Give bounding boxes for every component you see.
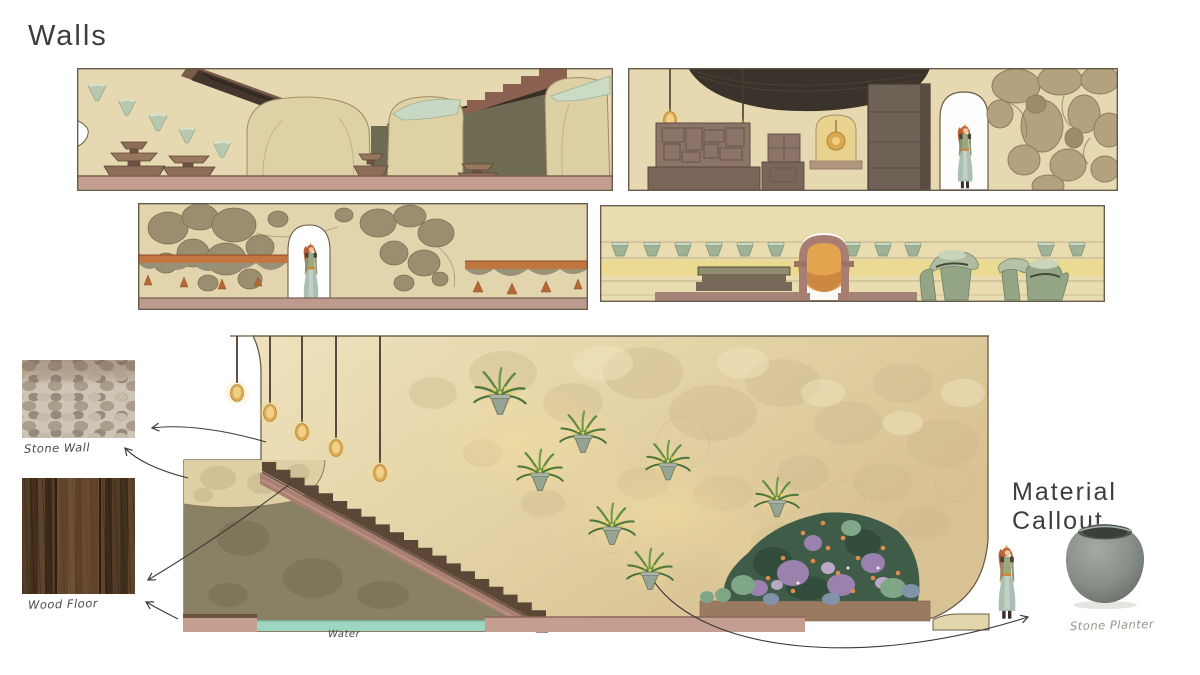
- main-elevation: [183, 333, 990, 633]
- arrow-to-wood-floor-2: [146, 602, 178, 619]
- water-label: Water: [328, 629, 360, 640]
- stone-planter-image: [1057, 519, 1153, 613]
- wood-floor-swatch: [22, 478, 135, 594]
- floor-strip: [139, 298, 588, 309]
- floor-strip: [655, 292, 917, 301]
- stone-wall-swatch: [22, 360, 135, 438]
- boulder: [545, 76, 610, 186]
- stone-wall-label: Stone Wall: [24, 440, 90, 456]
- floor-strip: [78, 176, 613, 189]
- right-ledge: [933, 614, 989, 630]
- side-box: [762, 134, 804, 190]
- doorway-arch: [288, 225, 330, 307]
- page-title: Walls: [28, 20, 108, 53]
- bench: [696, 267, 792, 291]
- wood-floor-label: Wood Floor: [28, 596, 98, 612]
- scale-figure: [991, 543, 1023, 623]
- boulder: [387, 97, 463, 186]
- arrow-to-stone-wall-2: [125, 448, 188, 478]
- boulder: [247, 97, 371, 186]
- character-figure: [999, 545, 1016, 618]
- stone-planter-label: Stone Planter: [1070, 617, 1154, 633]
- doorway-arch: [940, 92, 988, 190]
- cabinet: [648, 123, 760, 190]
- floor-strip: [485, 617, 805, 632]
- wall-elevation-4: [600, 205, 1105, 302]
- arch-niche: [794, 233, 854, 301]
- door: [868, 84, 930, 190]
- wall-elevation-3: [138, 203, 588, 310]
- wall-elevation-2: [628, 68, 1118, 191]
- water-pool: [257, 621, 485, 631]
- alcove-lamp: [810, 115, 862, 169]
- wall-elevation-1: [77, 68, 613, 191]
